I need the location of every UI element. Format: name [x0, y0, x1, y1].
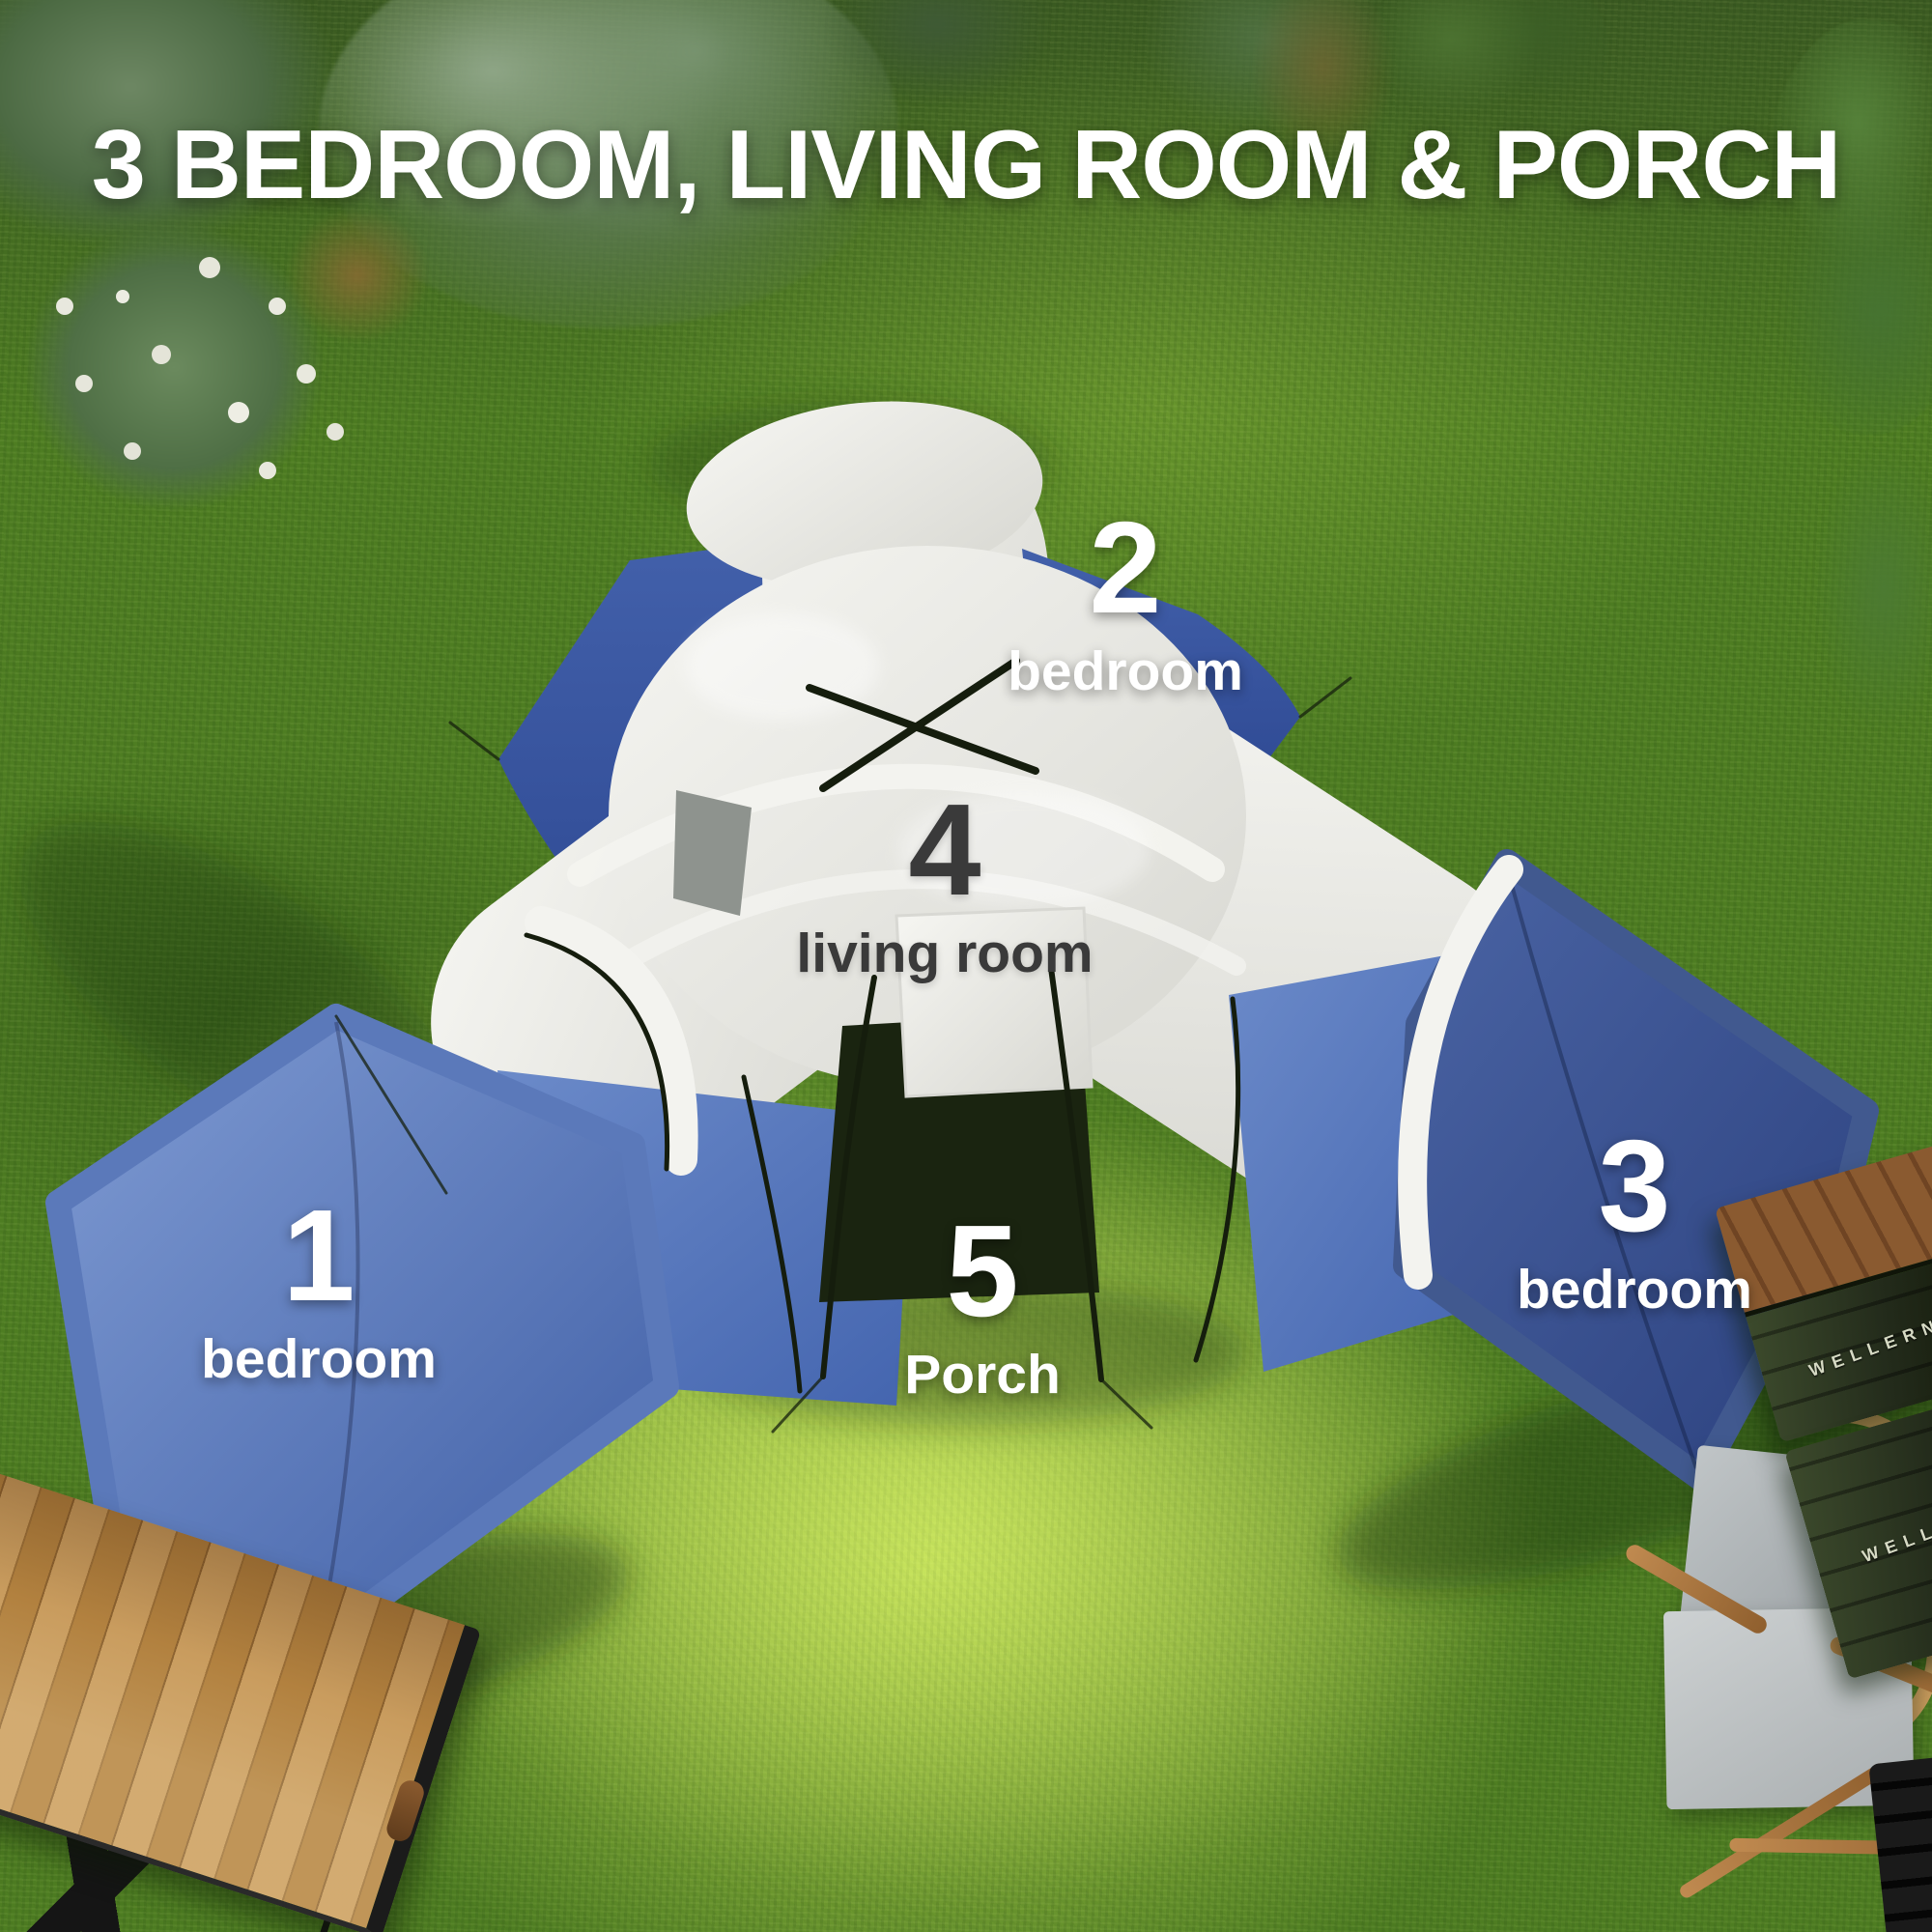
callout-number: 1 — [282, 1190, 355, 1321]
callout-label: bedroom — [1008, 644, 1243, 699]
callout-number: 3 — [1598, 1121, 1670, 1251]
callout-number: 2 — [1089, 502, 1161, 633]
callout-label: bedroom — [1517, 1263, 1752, 1318]
callout-label: Porch — [904, 1348, 1061, 1403]
scene: WELLERN WELLERN 3 BEDROOM, LIVING ROOM &… — [0, 0, 1932, 1932]
callout-bedroom-3: 3 bedroom — [1517, 1121, 1752, 1318]
callout-label: living room — [796, 926, 1093, 981]
callout-porch: 5 Porch — [904, 1206, 1061, 1403]
callout-number: 4 — [908, 784, 980, 915]
callout-bedroom-1: 1 bedroom — [201, 1190, 437, 1387]
callout-living-room: 4 living room — [796, 784, 1093, 981]
callout-bedroom-2: 2 bedroom — [1008, 502, 1243, 699]
callout-label: bedroom — [201, 1332, 437, 1387]
crate-brand-label: WELLERN — [1860, 1500, 1932, 1567]
crate-brand-label: WELLERN — [1805, 1315, 1932, 1381]
callout-number: 5 — [946, 1206, 1018, 1336]
page-title: 3 BEDROOM, LIVING ROOM & PORCH — [0, 112, 1932, 219]
mesh-window — [673, 790, 752, 916]
